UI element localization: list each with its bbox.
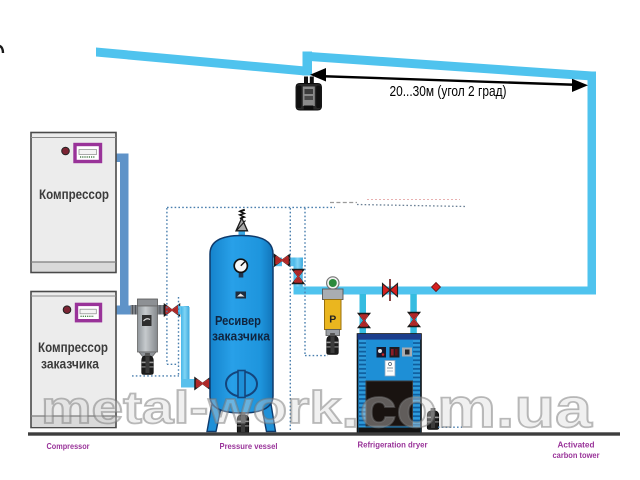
svg-text:Compressor: Compressor bbox=[47, 441, 91, 451]
svg-text:Activated: Activated bbox=[558, 440, 595, 450]
svg-text:заказчика: заказчика bbox=[212, 330, 271, 344]
svg-text:Ресивер: Ресивер bbox=[215, 314, 261, 328]
svg-text:.com.ua: .com.ua bbox=[341, 376, 593, 439]
svg-text:Компрессор: Компрессор bbox=[38, 340, 108, 355]
svg-text:metal-work: metal-work bbox=[41, 382, 342, 433]
svg-text:20...30м (угол 2 град): 20...30м (угол 2 град) bbox=[390, 84, 507, 100]
svg-text:P: P bbox=[329, 314, 336, 326]
svg-text:Refrigeration dryer: Refrigeration dryer bbox=[358, 440, 429, 450]
svg-text:carbon tower: carbon tower bbox=[553, 450, 601, 460]
svg-text:Pressure vessel: Pressure vessel bbox=[220, 441, 278, 451]
svg-text:заказчика: заказчика bbox=[41, 357, 99, 372]
svg-text:Компрессор: Компрессор bbox=[39, 187, 109, 202]
